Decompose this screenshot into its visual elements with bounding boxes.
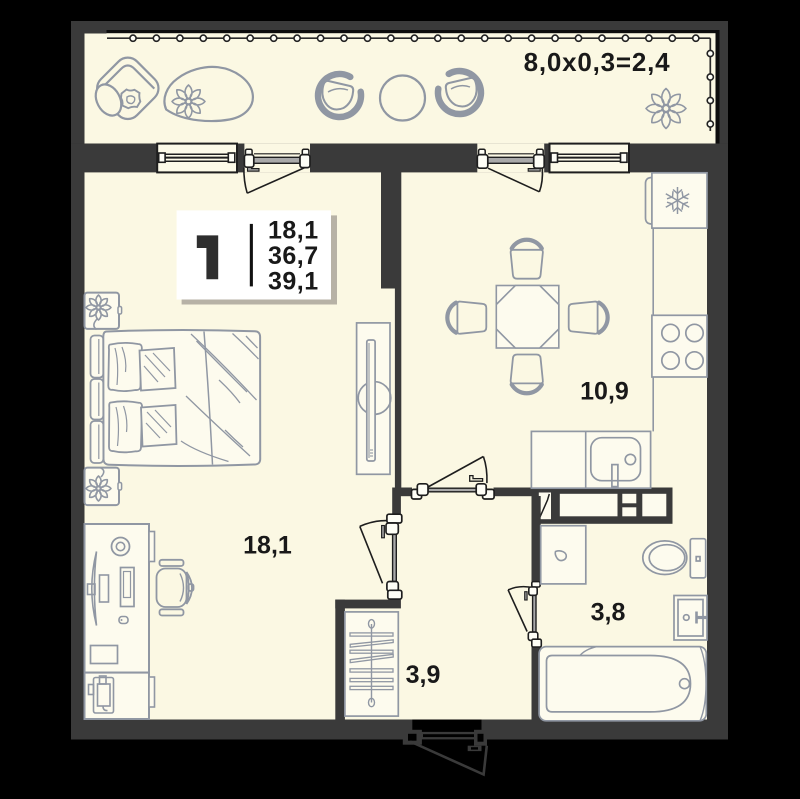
svg-text:3,8: 3,8 (591, 599, 626, 627)
svg-text:18,1: 18,1 (268, 216, 319, 244)
svg-text:36,7: 36,7 (268, 242, 319, 270)
svg-text:39,1: 39,1 (268, 267, 319, 295)
svg-text:18,1: 18,1 (243, 532, 292, 560)
svg-text:10,9: 10,9 (580, 378, 629, 406)
svg-text:3,9: 3,9 (406, 661, 441, 689)
svg-text:8,0x0,3=2,4: 8,0x0,3=2,4 (524, 47, 671, 77)
